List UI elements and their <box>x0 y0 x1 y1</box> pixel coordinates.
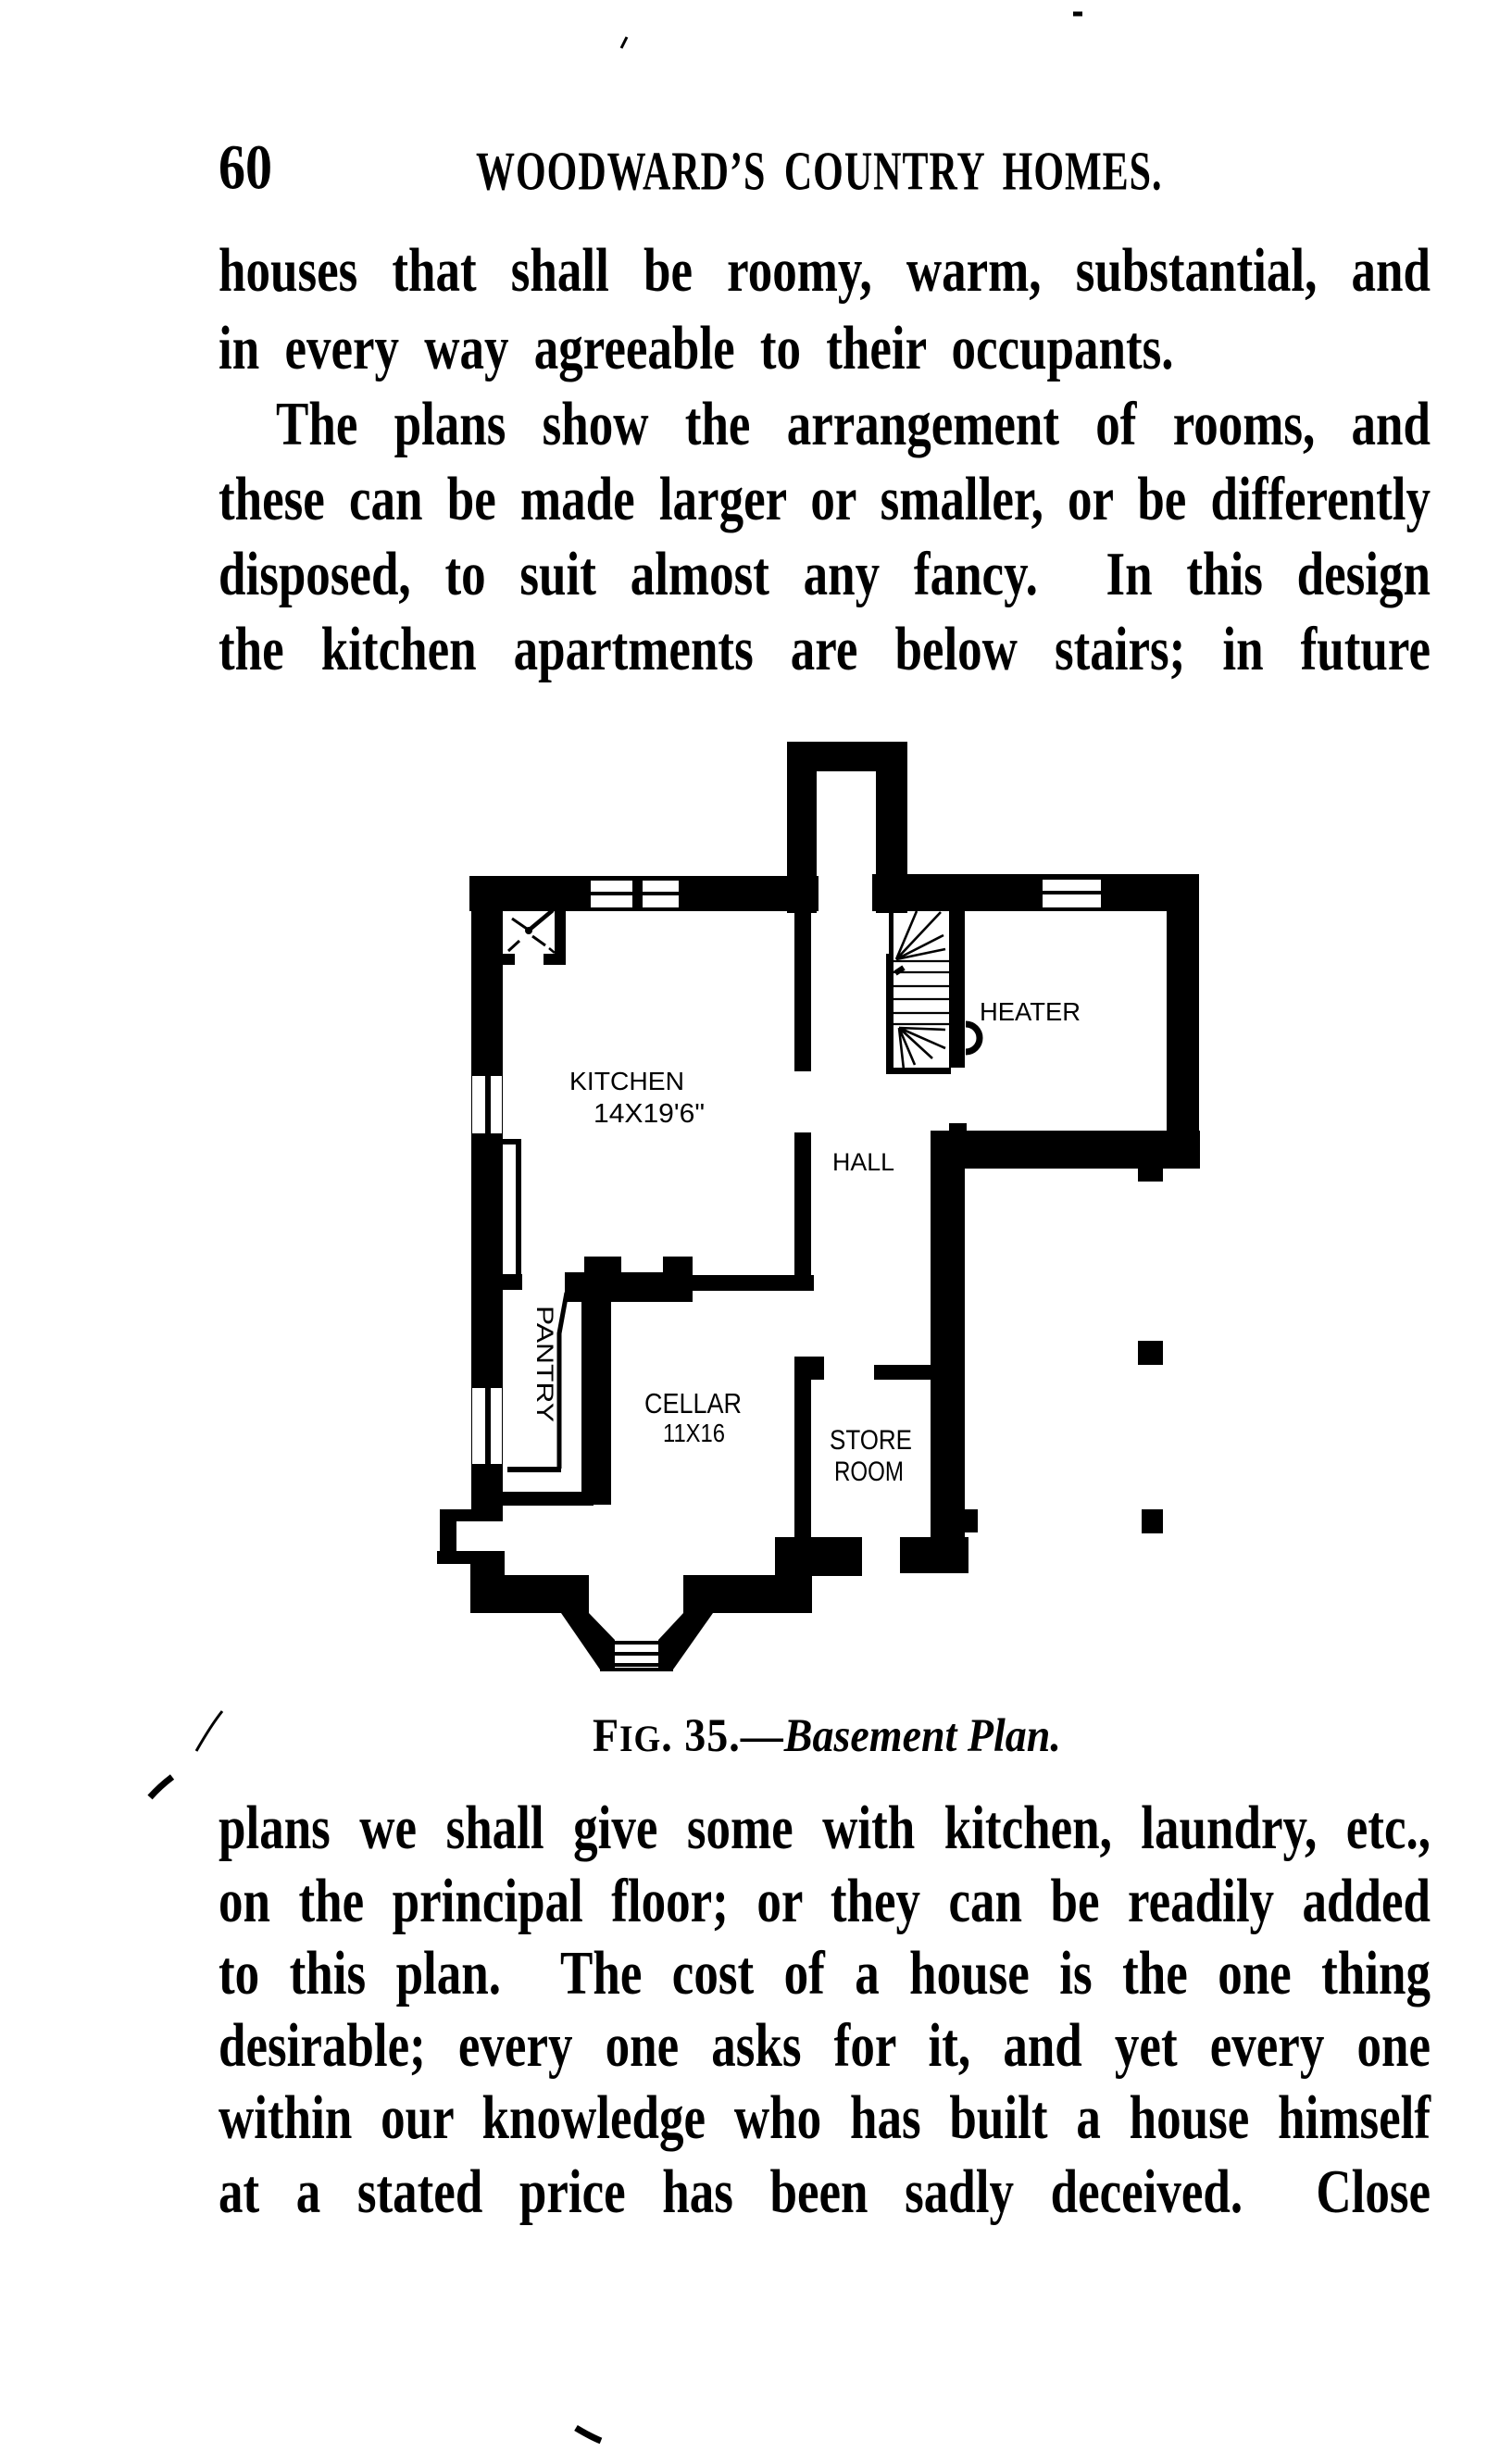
svg-text:CELLAR: CELLAR <box>644 1387 742 1420</box>
svg-text:STORE: STORE <box>830 1425 912 1456</box>
svg-text:ROOM: ROOM <box>834 1457 904 1487</box>
svg-text:HEATER: HEATER <box>980 997 1081 1026</box>
svg-text:PANTRY: PANTRY <box>531 1306 557 1422</box>
svg-text:14X19'6": 14X19'6" <box>594 1099 705 1129</box>
svg-text:HALL: HALL <box>832 1148 894 1176</box>
svg-text:KITCHEN: KITCHEN <box>569 1067 684 1095</box>
svg-text:11X16: 11X16 <box>663 1419 725 1447</box>
